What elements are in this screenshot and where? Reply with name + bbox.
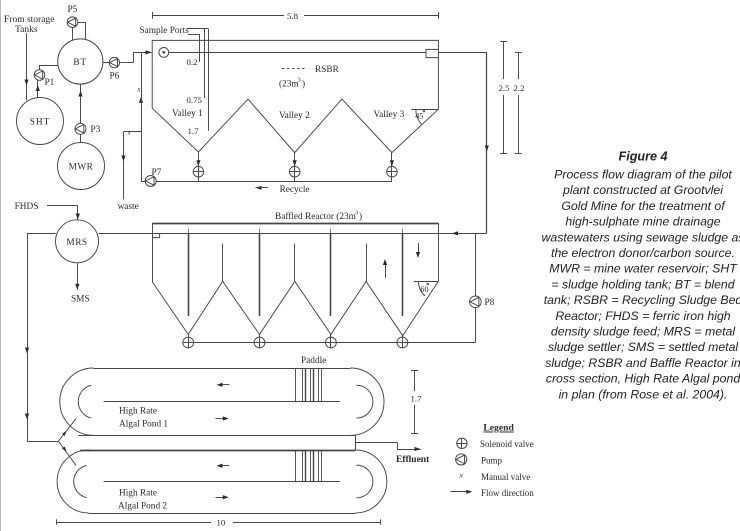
svg-text:From storage: From storage — [4, 15, 54, 25]
svg-text:3: 3 — [298, 77, 301, 84]
svg-text:Pump: Pump — [481, 455, 503, 465]
svg-text:FHDS: FHDS — [15, 202, 39, 212]
svg-text:MWR: MWR — [69, 163, 94, 173]
svg-text:): ) — [359, 211, 362, 222]
svg-text:RSBR: RSBR — [315, 65, 340, 75]
svg-text:2.2: 2.2 — [514, 83, 525, 93]
svg-text:MRS: MRS — [66, 238, 87, 248]
svg-text:P5: P5 — [68, 5, 78, 15]
svg-text:(23m: (23m — [279, 79, 299, 90]
svg-text:10: 10 — [217, 518, 226, 528]
svg-text:Algal Pond 1: Algal Pond 1 — [119, 420, 168, 430]
svg-text:density sludge feed; MRS = met: density sludge feed; MRS = metal — [551, 325, 736, 339]
svg-text:waste: waste — [118, 202, 139, 212]
svg-text:Solenoid valve: Solenoid valve — [480, 439, 534, 449]
svg-text:sludge; RSBR and Baffle Reacto: sludge; RSBR and Baffle Reactor in — [545, 356, 740, 370]
svg-text:High Rate: High Rate — [119, 488, 157, 498]
svg-text:Gold Mine for the treatment of: Gold Mine for the treatment of — [561, 199, 726, 213]
svg-text:cross section, High Rate Algal: cross section, High Rate Algal pond — [546, 372, 740, 386]
svg-text:in plan (from Rose et al. 2004: in plan (from Rose et al. 2004). — [559, 387, 728, 401]
svg-text:3: 3 — [355, 210, 358, 217]
svg-text:P1: P1 — [45, 78, 55, 88]
svg-text:Algal Pond 2: Algal Pond 2 — [118, 502, 167, 512]
svg-text:Recycle: Recycle — [280, 185, 310, 195]
svg-text:Sample Ports: Sample Ports — [140, 26, 190, 36]
svg-text:0.2: 0.2 — [187, 57, 198, 67]
svg-text:60: 60 — [420, 285, 428, 294]
svg-text:45: 45 — [415, 112, 423, 121]
svg-text:5.8: 5.8 — [287, 11, 299, 21]
svg-text:Figure 4: Figure 4 — [619, 150, 668, 164]
svg-text:Manual valve: Manual valve — [481, 472, 530, 482]
svg-text:): ) — [302, 79, 305, 90]
svg-text:High Rate: High Rate — [119, 407, 157, 417]
svg-text:SMS: SMS — [71, 295, 90, 305]
svg-text:Reactor; FHDS = ferric iron hi: Reactor; FHDS = ferric iron high — [555, 309, 730, 323]
svg-text:MWR = mine water reservoir; SH: MWR = mine water reservoir; SHT — [549, 262, 738, 276]
svg-text:P6: P6 — [110, 71, 120, 81]
svg-text:P3: P3 — [91, 125, 101, 135]
svg-text:plant constructed at Grootvlei: plant constructed at Grootvlei — [562, 183, 724, 197]
svg-text:tank; RSBR = Recycling Sludge: tank; RSBR = Recycling Sludge Bed — [544, 293, 740, 307]
svg-text:BT: BT — [73, 58, 87, 68]
svg-text:0.75: 0.75 — [187, 95, 203, 105]
svg-text:2.5: 2.5 — [499, 83, 511, 93]
svg-text:Valley 1: Valley 1 — [172, 109, 203, 119]
svg-text:Valley 2: Valley 2 — [279, 111, 310, 121]
svg-text:1.7: 1.7 — [411, 394, 423, 404]
svg-text:Baffled Reactor (23m: Baffled Reactor (23m — [275, 211, 357, 222]
svg-text:wastewaters using sewage sludg: wastewaters using sewage sludge as — [541, 230, 740, 244]
svg-text:Legend: Legend — [483, 423, 514, 434]
svg-text:P8: P8 — [485, 298, 495, 308]
svg-text:Effluent: Effluent — [396, 455, 430, 465]
svg-text:high-sulphate mine drainage: high-sulphate mine drainage — [565, 215, 720, 229]
svg-text:Paddle: Paddle — [301, 356, 326, 366]
svg-text:SHT: SHT — [30, 118, 51, 128]
svg-text:x: x — [459, 471, 464, 480]
svg-text:Process flow diagram of the pi: Process flow diagram of the pilot — [554, 168, 732, 182]
svg-text:sludge settler; SMS = settled: sludge settler; SMS = settled metal — [548, 340, 740, 354]
svg-text:= sludge holding tank; BT = bl: = sludge holding tank; BT = blend — [551, 277, 735, 291]
svg-text:P7: P7 — [152, 168, 162, 178]
svg-text:the electron donor/carbon sour: the electron donor/carbon source. — [551, 246, 735, 260]
svg-text:1.7: 1.7 — [188, 126, 200, 136]
svg-text:x: x — [127, 129, 131, 136]
svg-text:Valley 3: Valley 3 — [374, 110, 405, 120]
svg-text:Flow direction: Flow direction — [481, 488, 534, 498]
svg-text:x: x — [136, 86, 141, 94]
